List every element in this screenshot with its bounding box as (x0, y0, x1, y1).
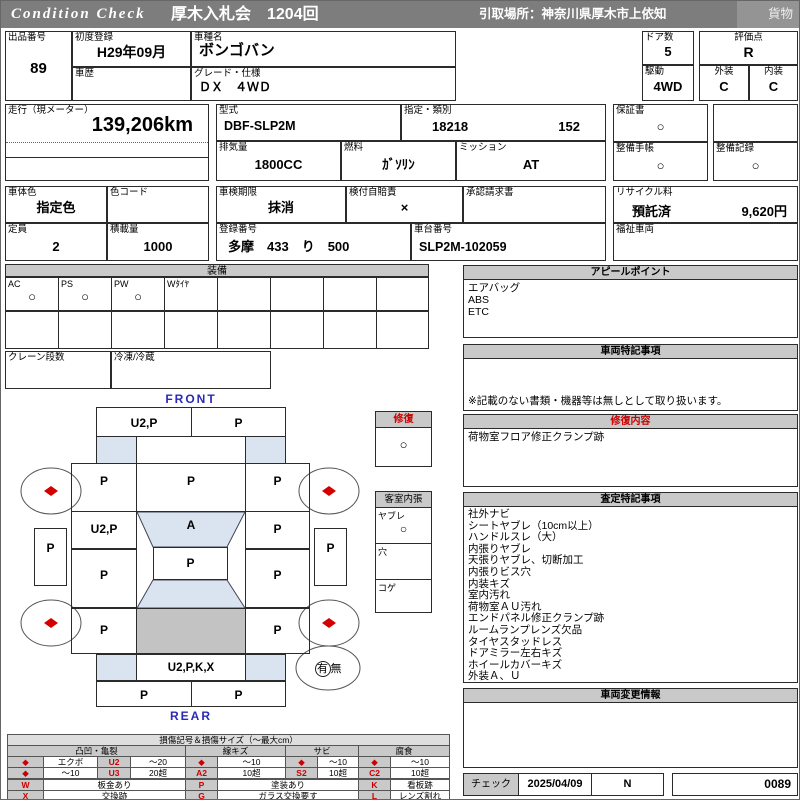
damage-code-table: W 板金あり P 塗装あり K 看板跡 X 交換跡 G ガラス交換要す L レン… (7, 779, 450, 800)
cabin-hole-label: 穴 (378, 545, 387, 558)
damage-code-x-label: 交換跡 (44, 791, 186, 800)
transmission-cell: ミッション AT (456, 141, 606, 181)
equipment-ac-mark: ○ (7, 290, 57, 304)
assessment-notes-header: 査定特記事項 (464, 493, 797, 507)
equipment-cell-empty (323, 277, 377, 311)
damage-code-p: P (186, 780, 218, 791)
panel-label: P (247, 623, 308, 637)
sheet-number: 0089 (672, 773, 798, 796)
panel-cargo-roof (136, 608, 246, 654)
cabin-lining-row-burn: コゲ (376, 580, 431, 614)
mileage-divider-dotted (6, 142, 208, 143)
class-number-cell: 指定・類別 18218 152 (401, 104, 606, 141)
equipment-cell-empty (217, 277, 271, 311)
damage-code-p-label: 塗装あり (218, 780, 359, 791)
capacity-value: 2 (7, 240, 105, 254)
grade-label: グレード・仕様 (194, 69, 261, 79)
legend-code-u2: U2 (98, 757, 131, 768)
panel-label: P (316, 541, 345, 555)
exterior-grade-cell: 外装 C (699, 65, 749, 101)
drive-label: 駆動 (645, 67, 664, 77)
legend-corrosion-size: 10超 (391, 768, 450, 779)
damage-code-g: G (186, 791, 218, 800)
lot-number-label: 出品番号 (8, 33, 46, 43)
vehicle-notes-header: 車両特記事項 (464, 345, 797, 359)
panel-label: P (193, 688, 284, 702)
header-bar: Condition Check 厚木入札会 1204回 引取場所：神奈川県厚木市… (1, 1, 800, 28)
panel-side-left-front: P (71, 549, 137, 608)
check-inspector: N (592, 774, 663, 795)
damage-diamond-icon: ◆ (286, 757, 318, 768)
equipment-cell-ac: AC ○ (5, 277, 59, 311)
load-capacity-cell: 積載量 1000 (107, 223, 209, 261)
crane-stages-cell: クレーン段数 (5, 351, 111, 389)
assessment-item: 室内汚れ (468, 590, 793, 602)
damage-code-g-label: ガラス交換要す (218, 791, 359, 800)
rear-window-shape (137, 580, 245, 608)
warranty-label: 保証書 (616, 106, 645, 116)
approval-request-cell: 承認請求書 (463, 186, 606, 223)
assessment-item: 外装Ａ、Ｕ (468, 671, 793, 683)
model-code-value: DBF-SLP2M (218, 119, 399, 133)
damage-diamond-icon: ◆ (186, 757, 218, 768)
chassis-number-value: SLP2M-102059 (413, 240, 604, 254)
panel-rear-bumper-right: P (191, 681, 286, 707)
legend-code-s2: S2 (286, 768, 318, 779)
doors-value: 5 (644, 45, 692, 59)
panel-label: P (193, 416, 284, 430)
damage-code-k-label: 看板跡 (391, 780, 450, 791)
registration-number-label: 登録番号 (219, 225, 257, 235)
equipment-cell-ps: PS ○ (58, 277, 112, 311)
transmission-label: ミッション (459, 143, 507, 153)
repair-content-header: 修復内容 (464, 415, 797, 429)
lot-number-value: 89 (7, 62, 70, 76)
warranty-mark: ○ (615, 120, 706, 134)
interior-grade-label: 内装 (750, 67, 797, 77)
legend-code-u3: U3 (98, 768, 131, 779)
panel-label: P (138, 474, 244, 488)
lot-number-cell: 出品番号 89 (5, 31, 72, 101)
panel-hood: P (136, 463, 246, 512)
auction-title: 厚木入札会 1204回 (171, 1, 319, 28)
assessment-item: ドアミラー左右キズ (468, 648, 793, 660)
drive-value: 4WD (644, 80, 692, 94)
damage-diamond-icon: ◆ (359, 757, 391, 768)
assessment-item: 社外ナビ (468, 509, 793, 521)
history-cell: 車歴 (72, 67, 191, 101)
equipment-cell-empty (376, 311, 429, 349)
fuel-value: ｶﾞｿﾘﾝ (343, 158, 454, 172)
panel-side-right-front: P (245, 549, 310, 608)
equipment-cell-empty (111, 311, 165, 349)
spare-tire-indicator: 有無 (300, 660, 356, 677)
windshield-label: A (137, 518, 245, 532)
maintenance-record-mark: ○ (715, 159, 796, 173)
color-code-cell: 色コード (107, 186, 209, 223)
inspection-expiry-label: 車検期限 (219, 188, 257, 198)
crane-stages-label: クレーン段数 (8, 353, 65, 363)
first-registration-label: 初度登録 (75, 33, 113, 43)
displacement-value: 1800CC (218, 158, 339, 172)
legend-group-scratch: 線キズ (186, 746, 286, 757)
fridge-freezer-label: 冷凍/冷蔵 (114, 353, 155, 363)
doors-label: ドア数 (645, 33, 674, 43)
cabin-burn-label: コゲ (378, 581, 396, 594)
registration-number-value: 多摩 433 り 500 (218, 240, 409, 254)
appeal-item: ETC (468, 306, 793, 318)
vehicle-notes-section: 車両特記事項 ※記載のない書類・機器等は無しとして取り扱います。 (463, 344, 798, 411)
equipment-ps-label: PS (61, 279, 73, 289)
equipment-pw-mark: ○ (113, 290, 163, 304)
panel-cowl-corner-right (245, 436, 286, 464)
load-capacity-label: 積載量 (110, 225, 139, 235)
damage-code-l: L (359, 791, 391, 800)
mileage-cell: 走行（現メーター） 139,206km (5, 104, 209, 181)
damage-code-w: W (8, 780, 44, 791)
fuel-cell: 燃料 ｶﾞｿﾘﾝ (341, 141, 456, 181)
grade-value: ＤＸ ４ＷＤ (193, 80, 454, 94)
cabin-tear-mark: ○ (376, 522, 431, 536)
equipment-cell-empty (5, 311, 59, 349)
panel-label: U2,P (73, 522, 135, 536)
damage-diamond-icon: ◆ (8, 757, 44, 768)
cabin-lining-box: 客室内張 ヤブレ ○ 穴 コゲ (375, 491, 432, 613)
condition-check-sheet: Condition Check 厚木入札会 1204回 引取場所：神奈川県厚木市… (0, 0, 800, 800)
vehicle-change-section: 車両変更情報 (463, 688, 798, 768)
welfare-vehicle-cell: 福祉車両 (613, 223, 798, 261)
panel-label: P (36, 541, 65, 555)
equipment-cell-empty (270, 311, 324, 349)
equipment-cell-empty (270, 277, 324, 311)
damage-code-k: K (359, 780, 391, 791)
insurance-cell: 検付自賠責 × (346, 186, 463, 223)
repair-flag-mark: ○ (376, 428, 431, 452)
equipment-pw-label: PW (114, 279, 129, 289)
panel-front-fender-right: P (245, 463, 310, 512)
score-value: R (701, 45, 796, 59)
spare-tire-yes-circled: 有 (315, 661, 331, 677)
fridge-freezer-cell: 冷凍/冷蔵 (111, 351, 271, 389)
warranty-cell: 保証書 ○ (613, 104, 708, 142)
vehicle-notes-footnote: ※記載のない書類・機器等は無しとして取り扱います。 (468, 393, 727, 408)
maintenance-book-label: 整備手帳 (616, 144, 654, 154)
appeal-item: エアバッグ (468, 282, 793, 294)
front-direction-label: FRONT (96, 392, 286, 406)
appeal-item: ABS (468, 294, 793, 306)
recycle-fee-cell: リサイクル料 預託済 9,620円 (613, 186, 798, 223)
mileage-label: 走行（現メーター） (8, 106, 94, 116)
repair-flag-title: 修復 (376, 412, 431, 428)
class-number-label: 指定・類別 (404, 106, 452, 116)
pickup-location: 引取場所：神奈川県厚木市上依知 (479, 1, 667, 28)
body-color-cell: 車体色 指定色 (5, 186, 107, 223)
panel-label: P (73, 474, 135, 488)
panel-label: P (247, 522, 308, 536)
damage-code-w-label: 板金あり (44, 780, 186, 791)
approval-request-label: 承認請求書 (466, 188, 514, 198)
maintenance-record-label: 整備記録 (716, 144, 754, 154)
mileage-divider-solid (6, 157, 208, 158)
cabin-lining-row-hole: 穴 (376, 544, 431, 580)
equipment-section-header: 装備 (5, 264, 429, 277)
displacement-label: 排気量 (219, 143, 248, 153)
grade-cell: グレード・仕様 ＤＸ ４ＷＤ (191, 67, 456, 101)
legend-scratch-size: 10超 (218, 768, 286, 779)
legend-group-dent: 凸凹・亀裂 (8, 746, 186, 757)
model-name-cell: 車種名 ボンゴバン (191, 31, 456, 67)
equipment-cell-empty (376, 277, 429, 311)
check-date: 2025/04/09 (519, 774, 592, 795)
legend-dent-size: 20超 (131, 768, 186, 779)
inspection-expiry-cell: 車検期限 抹消 (216, 186, 346, 223)
insurance-mark: × (348, 201, 461, 215)
repair-flag-box: 修復 ○ (375, 411, 432, 467)
registration-number-cell: 登録番号 多摩 433 り 500 (216, 223, 411, 261)
panel-rear-corner-right (245, 654, 286, 681)
equipment-cell-empty (217, 311, 271, 349)
panel-label: U2,P,K,X (138, 661, 244, 675)
doors-cell: ドア数 5 (642, 31, 694, 65)
model-code-label: 型式 (219, 106, 238, 116)
equipment-wtire-label: Wﾀｲﾔ (167, 279, 189, 289)
blank-cell (713, 104, 798, 142)
check-label: チェック (464, 774, 519, 795)
panel-roof-front: P (153, 547, 228, 580)
panel-label: P (155, 556, 226, 570)
recycle-fee-label: リサイクル料 (616, 188, 673, 198)
chassis-number-cell: 車台番号 SLP2M-102059 (411, 223, 606, 261)
appeal-points-header: アピールポイント (464, 266, 797, 280)
legend-code-a2: A2 (186, 768, 218, 779)
check-row: チェック 2025/04/09 N (463, 773, 664, 796)
score-cell: 評価点 R (699, 31, 798, 65)
body-color-label: 車体色 (8, 188, 37, 198)
equipment-cell-empty (58, 311, 112, 349)
equipment-cell-empty (323, 311, 377, 349)
panel-label: P (98, 688, 190, 702)
exterior-grade-label: 外装 (700, 67, 748, 77)
maintenance-book-cell: 整備手帳 ○ (613, 142, 708, 181)
panel-front-bumper-left: U2,P (96, 407, 192, 437)
panel-label: U2,P (98, 416, 190, 430)
legend-dent-size: ～20 (131, 757, 186, 768)
cabin-tear-label: ヤブレ (378, 509, 405, 522)
assessment-notes-body: 社外ナビ シートヤブレ（10cm以上） ハンドルスレ（大） 内張りヤブレ 天張り… (464, 507, 797, 685)
panel-front-bumper-right: P (191, 407, 286, 437)
body-color-value: 指定色 (7, 201, 105, 215)
panel-label: P (73, 623, 135, 637)
welfare-vehicle-label: 福祉車両 (616, 225, 654, 235)
equipment-cell-empty (164, 311, 218, 349)
equipment-ps-mark: ○ (60, 290, 110, 304)
capacity-label: 定員 (8, 225, 27, 235)
repair-content-section: 修復内容 荷物室フロア修正クランプ跡 (463, 414, 798, 487)
equipment-cell-wtire: Wﾀｲﾔ (164, 277, 218, 311)
recycle-fee-value: 9,620円 (741, 201, 787, 220)
equipment-cell-pw: PW ○ (111, 277, 165, 311)
displacement-cell: 排気量 1800CC (216, 141, 341, 181)
legend-dent-label: ～10 (44, 768, 98, 779)
panel-label: P (73, 568, 135, 582)
legend-scratch-size: ～10 (218, 757, 286, 768)
legend-code-c2: C2 (359, 768, 391, 779)
score-label: 評価点 (700, 33, 797, 43)
cabin-lining-row-tear: ヤブレ ○ (376, 508, 431, 544)
damage-legend-table: 損傷記号＆損傷サイズ（～最大cm） 凸凹・亀裂 線キズ サビ 腐食 ◆ エクボ … (7, 734, 450, 779)
insurance-label: 検付自賠責 (349, 188, 397, 198)
assessment-item: 内張りビス穴 (468, 567, 793, 579)
first-registration-cell: 初度登録 H29年09月 (72, 31, 191, 67)
brand-logo: Condition Check (11, 1, 146, 28)
assessment-item: ルームランプレンズ欠品 (468, 625, 793, 637)
legend-title: 損傷記号＆損傷サイズ（～最大cm） (8, 735, 450, 746)
interior-grade-cell: 内装 C (749, 65, 798, 101)
designation-number-value: 18218 (432, 119, 468, 134)
legend-dent-label: エクボ (44, 757, 98, 768)
drive-cell: 駆動 4WD (642, 65, 694, 101)
chassis-number-label: 車台番号 (414, 225, 452, 235)
panel-front-door-left: U2,P (71, 511, 137, 549)
panel-side-right-rear: P (245, 608, 310, 654)
maintenance-book-mark: ○ (615, 159, 706, 173)
panel-front-door-right: P (245, 511, 310, 549)
capacity-cell: 定員 2 (5, 223, 107, 261)
recycle-status-value: 預託済 (632, 201, 671, 220)
assessment-item: 内装キズ (468, 579, 793, 591)
transmission-value: AT (458, 158, 604, 172)
panel-label: P (247, 474, 308, 488)
panel-front-fender-left: P (71, 463, 137, 512)
color-code-label: 色コード (110, 188, 148, 198)
classification-number-value: 152 (558, 119, 580, 134)
spare-tire-no: 無 (331, 663, 342, 675)
rear-direction-label: REAR (96, 709, 286, 723)
panel-rear-corner-left (96, 654, 137, 681)
repair-content-body: 荷物室フロア修正クランプ跡 (464, 429, 797, 445)
interior-grade-value: C (751, 80, 796, 94)
cabin-lining-title: 客室内張 (376, 492, 431, 508)
vehicle-change-header: 車両変更情報 (464, 689, 797, 703)
appeal-points-section: アピールポイント エアバッグ ABS ETC (463, 265, 798, 338)
fuel-label: 燃料 (344, 143, 363, 153)
exterior-grade-value: C (701, 80, 747, 94)
panel-cowl-center (136, 436, 246, 464)
equipment-ac-label: AC (8, 279, 21, 289)
panel-label: P (247, 568, 308, 582)
first-registration-value: H29年09月 (74, 45, 189, 59)
legend-rust-size: 10超 (318, 768, 359, 779)
legend-group-rust: サビ (286, 746, 359, 757)
panel-cowl-corner-left (96, 436, 137, 464)
maintenance-record-cell: 整備記録 ○ (713, 142, 798, 181)
mileage-value: 139,206km (7, 118, 207, 132)
legend-group-corrosion: 腐食 (359, 746, 450, 757)
legend-rust-size: ～10 (318, 757, 359, 768)
vehicle-category: 貨物 (768, 1, 793, 28)
model-code-cell: 型式 DBF-SLP2M (216, 104, 401, 141)
panel-step-left: P (34, 528, 67, 586)
load-capacity-value: 1000 (109, 240, 207, 254)
damage-code-l-label: レンズ割れ (391, 791, 450, 800)
panel-step-right: P (314, 528, 347, 586)
model-name-value: ボンゴバン (193, 44, 454, 58)
history-label: 車歴 (75, 69, 94, 79)
panel-rear-gate: U2,P,K,X (136, 654, 246, 681)
legend-corrosion-size: ～10 (391, 757, 450, 768)
damage-code-x: X (8, 791, 44, 800)
panel-side-left-rear: P (71, 608, 137, 654)
inspection-expiry-value: 抹消 (218, 201, 344, 215)
appeal-points-body: エアバッグ ABS ETC (464, 280, 797, 320)
panel-rear-bumper-left: P (96, 681, 192, 707)
assessment-notes-section: 査定特記事項 社外ナビ シートヤブレ（10cm以上） ハンドルスレ（大） 内張り… (463, 492, 798, 683)
damage-diamond-icon: ◆ (8, 768, 44, 779)
